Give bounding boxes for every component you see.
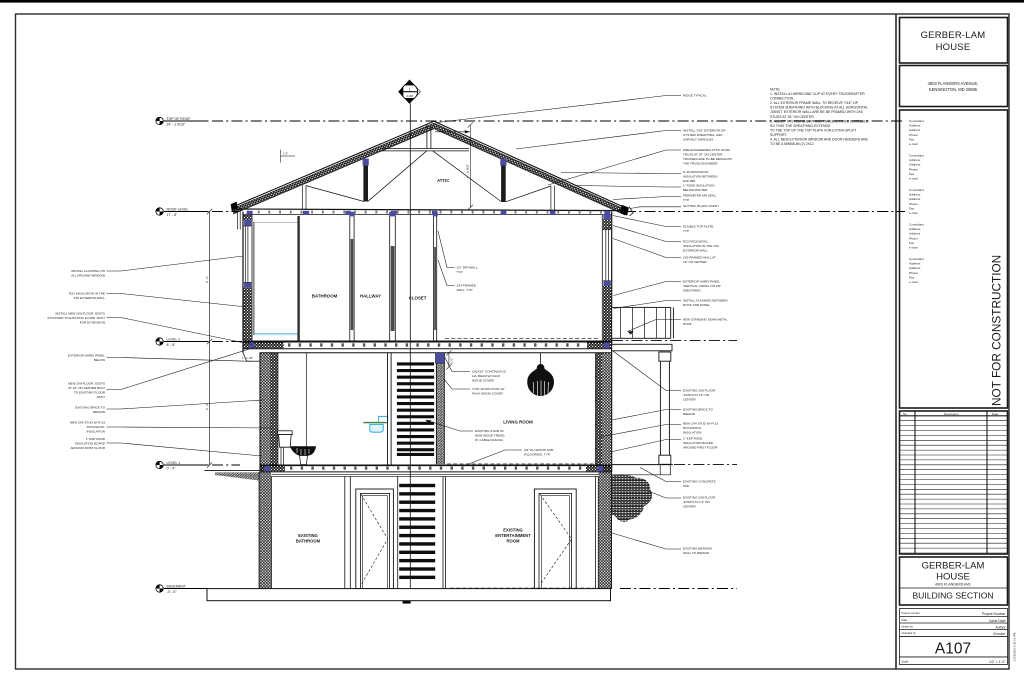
svg-text:JOISTS AT 16" ON: JOISTS AT 16" ON	[683, 393, 709, 397]
svg-text:BATHROOM: BATHROOM	[296, 539, 321, 544]
svg-text:Address: Address	[909, 128, 921, 132]
svg-text:LEVEL 1: LEVEL 1	[167, 461, 181, 465]
svg-text:R23 ROCKWOOL: R23 ROCKWOOL	[683, 240, 708, 244]
svg-text:NOT FOR CONSTRUCTION: NOT FOR CONSTRUCTION	[990, 255, 1004, 406]
svg-text:EXISTING 2X8 FLOOR: EXISTING 2X8 FLOOR	[683, 496, 716, 500]
svg-text:Checked by: Checked by	[902, 631, 917, 635]
svg-text:NEW 2X4 STUD W/ R-23: NEW 2X4 STUD W/ R-23	[70, 421, 105, 425]
svg-text:-3' - 6": -3' - 6"	[167, 590, 178, 594]
svg-text:24' - 1 9/16": 24' - 1 9/16"	[167, 122, 186, 126]
svg-text:Consultant: Consultant	[909, 257, 924, 261]
svg-text:Consultant: Consultant	[909, 154, 924, 158]
svg-text:ATTIC: ATTIC	[437, 178, 449, 183]
svg-text:Fax: Fax	[909, 275, 915, 279]
svg-text:2X6 FRAMED WALL AT: 2X6 FRAMED WALL AT	[683, 256, 716, 260]
svg-text:TO EXISTING FLOOR: TO EXISTING FLOOR	[74, 391, 106, 395]
svg-text:RAFTER: RAFTER	[683, 179, 696, 183]
svg-text:INSULATION: INSULATION	[683, 431, 701, 435]
svg-text:Address: Address	[909, 193, 921, 197]
svg-text:3/4" PLYWOOD SUB: 3/4" PLYWOOD SUB	[524, 448, 553, 452]
svg-text:GERBER-LAM: GERBER-LAM	[922, 561, 985, 572]
svg-text:ALL AROUND WINDOW: ALL AROUND WINDOW	[71, 274, 105, 278]
svg-text:INSULATION BOARD: INSULATION BOARD	[683, 441, 714, 445]
svg-text:3. ALL ZIP SYSTEM SHEATHING PA: 3. ALL ZIP SYSTEM SHEATHING PANEL IS TO …	[770, 119, 869, 123]
svg-text:WALL, TYP.: WALL, TYP.	[457, 288, 474, 292]
svg-text:BELOW: BELOW	[94, 358, 105, 362]
svg-text:Scale: Scale	[902, 660, 909, 664]
svg-text:LIVING ROOM: LIVING ROOM	[503, 420, 533, 425]
svg-text:KENSINGTON, MD 20895: KENSINGTON, MD 20895	[929, 87, 978, 92]
svg-text:LVL BEAM W/ FAUX: LVL BEAM W/ FAUX	[472, 374, 500, 378]
svg-text:SYSTEM SHEATHING, AND: SYSTEM SHEATHING, AND	[683, 133, 723, 137]
svg-text:EXTERIOR HARDI PANEL: EXTERIOR HARDI PANEL	[683, 280, 720, 284]
svg-text:TYP.: TYP.	[683, 198, 690, 202]
svg-text:Address: Address	[909, 266, 921, 270]
svg-text:4. ALL NEW EXTERIOR WINDOW AND: 4. ALL NEW EXTERIOR WINDOW AND DOOR HEAD…	[770, 138, 869, 142]
svg-text:e-mail: e-mail	[909, 177, 918, 181]
svg-text:NEW 2X4 STUD W/ R-23: NEW 2X4 STUD W/ R-23	[683, 422, 718, 426]
svg-text:Address: Address	[909, 227, 921, 231]
svg-text:4' - 11 9/32": 4' - 11 9/32"	[466, 164, 470, 178]
svg-text:ROOF: ROOF	[683, 322, 692, 326]
svg-text:Address: Address	[909, 262, 921, 266]
svg-text:INSULATION: INSULATION	[87, 430, 105, 434]
svg-text:TO THE TOP OF THE TOP PLATE FO: TO THE TOP OF THE TOP PLATE FOR EXTRA UP…	[770, 128, 857, 132]
svg-text:STUDS AT 16" ON CENTER.: STUDS AT 16" ON CENTER.	[770, 115, 815, 119]
svg-text:Phone: Phone	[909, 167, 918, 171]
svg-text:PERIMETER AIR SEAL,: PERIMETER AIR SEAL,	[683, 194, 717, 198]
svg-text:HOUSE: HOUSE	[936, 572, 970, 583]
svg-text:EXISTING BRICK TO: EXISTING BRICK TO	[75, 406, 105, 410]
svg-text:Drawn by: Drawn by	[902, 625, 914, 629]
svg-text:Address: Address	[909, 163, 921, 167]
svg-text:BUILDING SECTION: BUILDING SECTION	[912, 591, 993, 601]
svg-text:1: 1	[409, 87, 411, 91]
svg-text:FOR EXTENSION: FOR EXTENSION	[80, 321, 105, 325]
svg-text:JOIST: JOIST	[96, 395, 105, 399]
svg-text:8' - 8": 8' - 8"	[167, 343, 177, 347]
svg-text:SO THAT THE SHEATHING EXTENDS: SO THAT THE SHEATHING EXTENDS	[770, 124, 831, 128]
svg-text:SUPPORT.: SUPPORT.	[770, 133, 787, 137]
svg-text:R-49 ROCKWOOL: R-49 ROCKWOOL	[683, 170, 709, 174]
svg-text:AROUND FIRST FLOOR: AROUND FIRST FLOOR	[70, 446, 105, 450]
svg-text:SHEATHING: SHEATHING	[683, 289, 701, 293]
svg-text:Phone: Phone	[909, 202, 918, 206]
svg-text:INSULATION BOARD: INSULATION BOARD	[75, 442, 106, 446]
svg-text:GUTTER, BLACK FINISH: GUTTER, BLACK FINISH	[683, 204, 719, 208]
svg-text:ROCKWOOL: ROCKWOOL	[87, 425, 106, 429]
svg-text:1/24/2023 3:18:51 PM: 1/24/2023 3:18:51 PM	[1013, 632, 1017, 661]
svg-text:R23 INSULATION IN THE: R23 INSULATION IN THE	[69, 292, 105, 296]
svg-text:DOUBLE TOP PLATE,: DOUBLE TOP PLATE,	[683, 225, 714, 229]
svg-text:2. ALL EXTERIOR FRAME WALL TO: 2. ALL EXTERIOR FRAME WALL TO RECEIVE 7/…	[770, 101, 859, 105]
svg-text:AT 16" ON CENTER BOLT: AT 16" ON CENTER BOLT	[68, 386, 105, 390]
svg-text:TOP OF ROOF: TOP OF ROOF	[167, 117, 191, 121]
svg-text:CLOSET: CLOSET	[409, 296, 427, 301]
svg-text:EXISTING BRICK TO: EXISTING BRICK TO	[683, 408, 713, 412]
svg-text:ROCKWOOL: ROCKWOOL	[683, 426, 702, 430]
svg-text:RIDGE TYPICAL: RIDGE TYPICAL	[683, 94, 707, 98]
svg-text:Fax: Fax	[909, 172, 915, 176]
svg-text:TYP.: TYP.	[457, 270, 464, 274]
svg-text:ENTERTAINMENT: ENTERTAINMENT	[495, 533, 531, 538]
svg-text:CONNECTION.: CONNECTION.	[770, 97, 794, 101]
svg-text:1/2" DRYWALL,: 1/2" DRYWALL,	[457, 266, 479, 270]
svg-text:Consultant: Consultant	[909, 188, 924, 192]
svg-text:Date: Date	[992, 412, 998, 416]
svg-text:17' - 8": 17' - 8"	[167, 213, 179, 217]
svg-text:Phone: Phone	[909, 271, 918, 275]
svg-text:Description: Description	[944, 412, 959, 416]
svg-text:Consultant: Consultant	[909, 119, 924, 123]
svg-text:EXISTING BEARING: EXISTING BEARING	[683, 547, 713, 551]
svg-text:1" ESP RIGID: 1" ESP RIGID	[683, 437, 703, 441]
svg-text:EXTERIOR WALL: EXTERIOR WALL	[683, 249, 708, 253]
svg-text:ROOF AND PANEL: ROOF AND PANEL	[683, 303, 710, 307]
svg-text:TYP.: TYP.	[683, 229, 690, 233]
svg-text:CENTER: CENTER	[683, 505, 696, 509]
svg-text:16" ON CENTER: 16" ON CENTER	[683, 260, 707, 264]
svg-text:INSTALL FLASHING ON: INSTALL FLASHING ON	[71, 269, 105, 273]
svg-text:PAD: PAD	[683, 484, 690, 488]
svg-text:0' - 0": 0' - 0"	[167, 466, 177, 470]
svg-text:INSTALL NEW 2X8 FLOOR JOISTS: INSTALL NEW 2X8 FLOOR JOISTS	[55, 312, 105, 316]
svg-text:JOISTS AT 1'4" ON: JOISTS AT 1'4" ON	[683, 500, 710, 504]
svg-text:Project number: Project number	[902, 611, 920, 615]
svg-text:EXISTING 2X8 FLOOR: EXISTING 2X8 FLOOR	[683, 389, 716, 393]
svg-text:NEW 2X8 FLOOR JOISTS: NEW 2X8 FLOOR JOISTS	[68, 382, 105, 386]
svg-text:FAUX WOOD COVER: FAUX WOOD COVER	[472, 392, 504, 396]
svg-text:Fax: Fax	[909, 137, 915, 141]
svg-text:INSTALL FLASHING BETWEEN: INSTALL FLASHING BETWEEN	[683, 299, 728, 303]
svg-text:1' - 1 1/8": 1' - 1 1/8"	[242, 356, 253, 360]
svg-text:ROOF LEVEL: ROOF LEVEL	[167, 207, 189, 211]
svg-text:TO BE A MINIMUM (2) 2X12: TO BE A MINIMUM (2) 2X12	[770, 142, 814, 146]
svg-text:No.: No.	[903, 412, 908, 416]
svg-text:INSULATION BETWEEN: INSULATION BETWEEN	[683, 175, 718, 179]
svg-text:1'-0": 1'-0"	[283, 152, 288, 156]
svg-text:SYSTEM SHEATHING WITH BLOCKING: SYSTEM SHEATHING WITH BLOCKING AT ALL HO…	[770, 106, 868, 110]
svg-text:(F)LOORING, TYP.: (F)LOORING, TYP.	[524, 453, 550, 457]
svg-text:2X4 FRAMED: 2X4 FRAMED	[457, 284, 477, 288]
svg-text:NOTE:: NOTE:	[770, 88, 781, 92]
svg-text:W. CABLE RAILING: W. CABLE RAILING	[475, 438, 503, 442]
svg-text:BELOW RAFTER: BELOW RAFTER	[683, 188, 708, 192]
svg-text:CENTER: CENTER	[683, 398, 696, 402]
svg-text:Address: Address	[909, 158, 921, 162]
svg-text:WOOD COVER: WOOD COVER	[472, 379, 495, 383]
svg-text:TRUSS AT 24" ON CENTER.: TRUSS AT 24" ON CENTER.	[683, 153, 723, 157]
svg-text:Checker: Checker	[993, 632, 1006, 636]
svg-text:HALLWAY: HALLWAY	[360, 294, 381, 299]
svg-text:BATHROOM: BATHROOM	[312, 294, 338, 299]
svg-text:NEW WOOD TREAD,: NEW WOOD TREAD,	[475, 434, 505, 438]
svg-text:INSTALL 7/16" EXTERIOR ZIP: INSTALL 7/16" EXTERIOR ZIP	[683, 129, 726, 133]
svg-text:INSULATION IN THE 2X6: INSULATION IN THE 2X6	[683, 244, 719, 248]
svg-text:REMAIN: REMAIN	[93, 410, 105, 414]
svg-text:AROUND FIRST FLOOR: AROUND FIRST FLOOR	[683, 446, 718, 450]
svg-text:WALL TO REMAIN: WALL TO REMAIN	[683, 551, 709, 555]
svg-text:TRUSSES ARE TO-BE DESIGN BY: TRUSSES ARE TO-BE DESIGN BY	[683, 157, 733, 161]
svg-text:BASEMENT: BASEMENT	[167, 584, 187, 588]
svg-text:Address: Address	[909, 232, 921, 236]
svg-text:THE TRUSS ENGINEER: THE TRUSS ENGINEER	[683, 162, 718, 166]
svg-text:VERTICAL SIDING ON ZIP: VERTICAL SIDING ON ZIP	[683, 284, 721, 288]
svg-text:1" RIGID INSULATION: 1" RIGID INSULATION	[683, 184, 714, 188]
svg-text:EXISTING: EXISTING	[298, 533, 318, 538]
svg-text:A108: A108	[407, 94, 414, 98]
svg-text:e-mail: e-mail	[909, 246, 918, 250]
svg-text:PRE-ENGINEERED ATTIC ROOF: PRE-ENGINEERED ATTIC ROOF	[683, 148, 730, 152]
svg-text:ATTACHED TO EXISTING FLOOR JOI: ATTACHED TO EXISTING FLOOR JOIST	[47, 316, 105, 320]
svg-text:e-mail: e-mail	[909, 211, 918, 215]
svg-text:REMAIN: REMAIN	[683, 412, 695, 416]
svg-text:4903 FLANDERS AVENUE,: 4903 FLANDERS AVENUE,	[928, 81, 979, 86]
svg-text:Consultant: Consultant	[909, 223, 924, 227]
svg-text:Phone: Phone	[909, 236, 918, 240]
svg-text:e-mail: e-mail	[909, 280, 918, 284]
svg-text:Fax: Fax	[909, 241, 915, 245]
svg-text:Author: Author	[996, 625, 1007, 629]
svg-text:HOUSE: HOUSE	[936, 42, 971, 53]
svg-text:Phone: Phone	[909, 133, 918, 137]
svg-text:Date: Date	[902, 618, 908, 622]
svg-text:2X6 EXTERIOR WALL: 2X6 EXTERIOR WALL	[74, 296, 106, 300]
svg-text:1" ESP RIGID: 1" ESP RIGID	[86, 437, 106, 441]
svg-text:EXISTING STAIR W/: EXISTING STAIR W/	[475, 429, 504, 433]
svg-text:(3)2X10" CONTINUOUS: (3)2X10" CONTINUOUS	[472, 370, 506, 374]
svg-text:ASPHALT SHINGLES: ASPHALT SHINGLES	[683, 138, 713, 142]
svg-text:JOINST. EXTERIOR WALL ARE BE B: JOINST. EXTERIOR WALL ARE BE BE FRAMED W…	[770, 110, 863, 114]
svg-text:1/2" = 1'-0": 1/2" = 1'-0"	[989, 660, 1006, 664]
svg-text:4"X6" WOOD POST W/: 4"X6" WOOD POST W/	[472, 387, 505, 391]
svg-text:Address: Address	[909, 197, 921, 201]
svg-text:GERBER-LAM: GERBER-LAM	[921, 30, 986, 41]
svg-text:Fax: Fax	[909, 206, 915, 210]
svg-text:EXISTING CONCRETE: EXISTING CONCRETE	[683, 480, 716, 484]
svg-text:8' - 8": 8' - 8"	[205, 403, 209, 410]
svg-text:NEW STANDING SEAM METAL: NEW STANDING SEAM METAL	[683, 318, 728, 322]
svg-text:Address: Address	[909, 124, 921, 128]
svg-text:Project Number: Project Number	[982, 612, 1006, 616]
svg-text:1. INSTALL A HURRICANE CLIP AT: 1. INSTALL A HURRICANE CLIP AT EVERY TRU…	[770, 92, 865, 96]
svg-text:EXTERIOR HARDI PANEL: EXTERIOR HARDI PANEL	[68, 354, 105, 358]
svg-text:Issue Date: Issue Date	[989, 619, 1005, 623]
svg-text:e-mail: e-mail	[909, 142, 918, 146]
svg-text:9' - 0": 9' - 0"	[205, 276, 209, 283]
svg-text:A107: A107	[935, 641, 971, 658]
svg-text:ROOM: ROOM	[506, 539, 520, 544]
svg-text:4903 FLANDERS AVE: 4903 FLANDERS AVE	[935, 583, 971, 587]
svg-text:9 1/2": 9 1/2"	[451, 358, 454, 364]
svg-text:EXISTING: EXISTING	[503, 528, 523, 533]
svg-text:LEVEL 2: LEVEL 2	[167, 337, 181, 341]
